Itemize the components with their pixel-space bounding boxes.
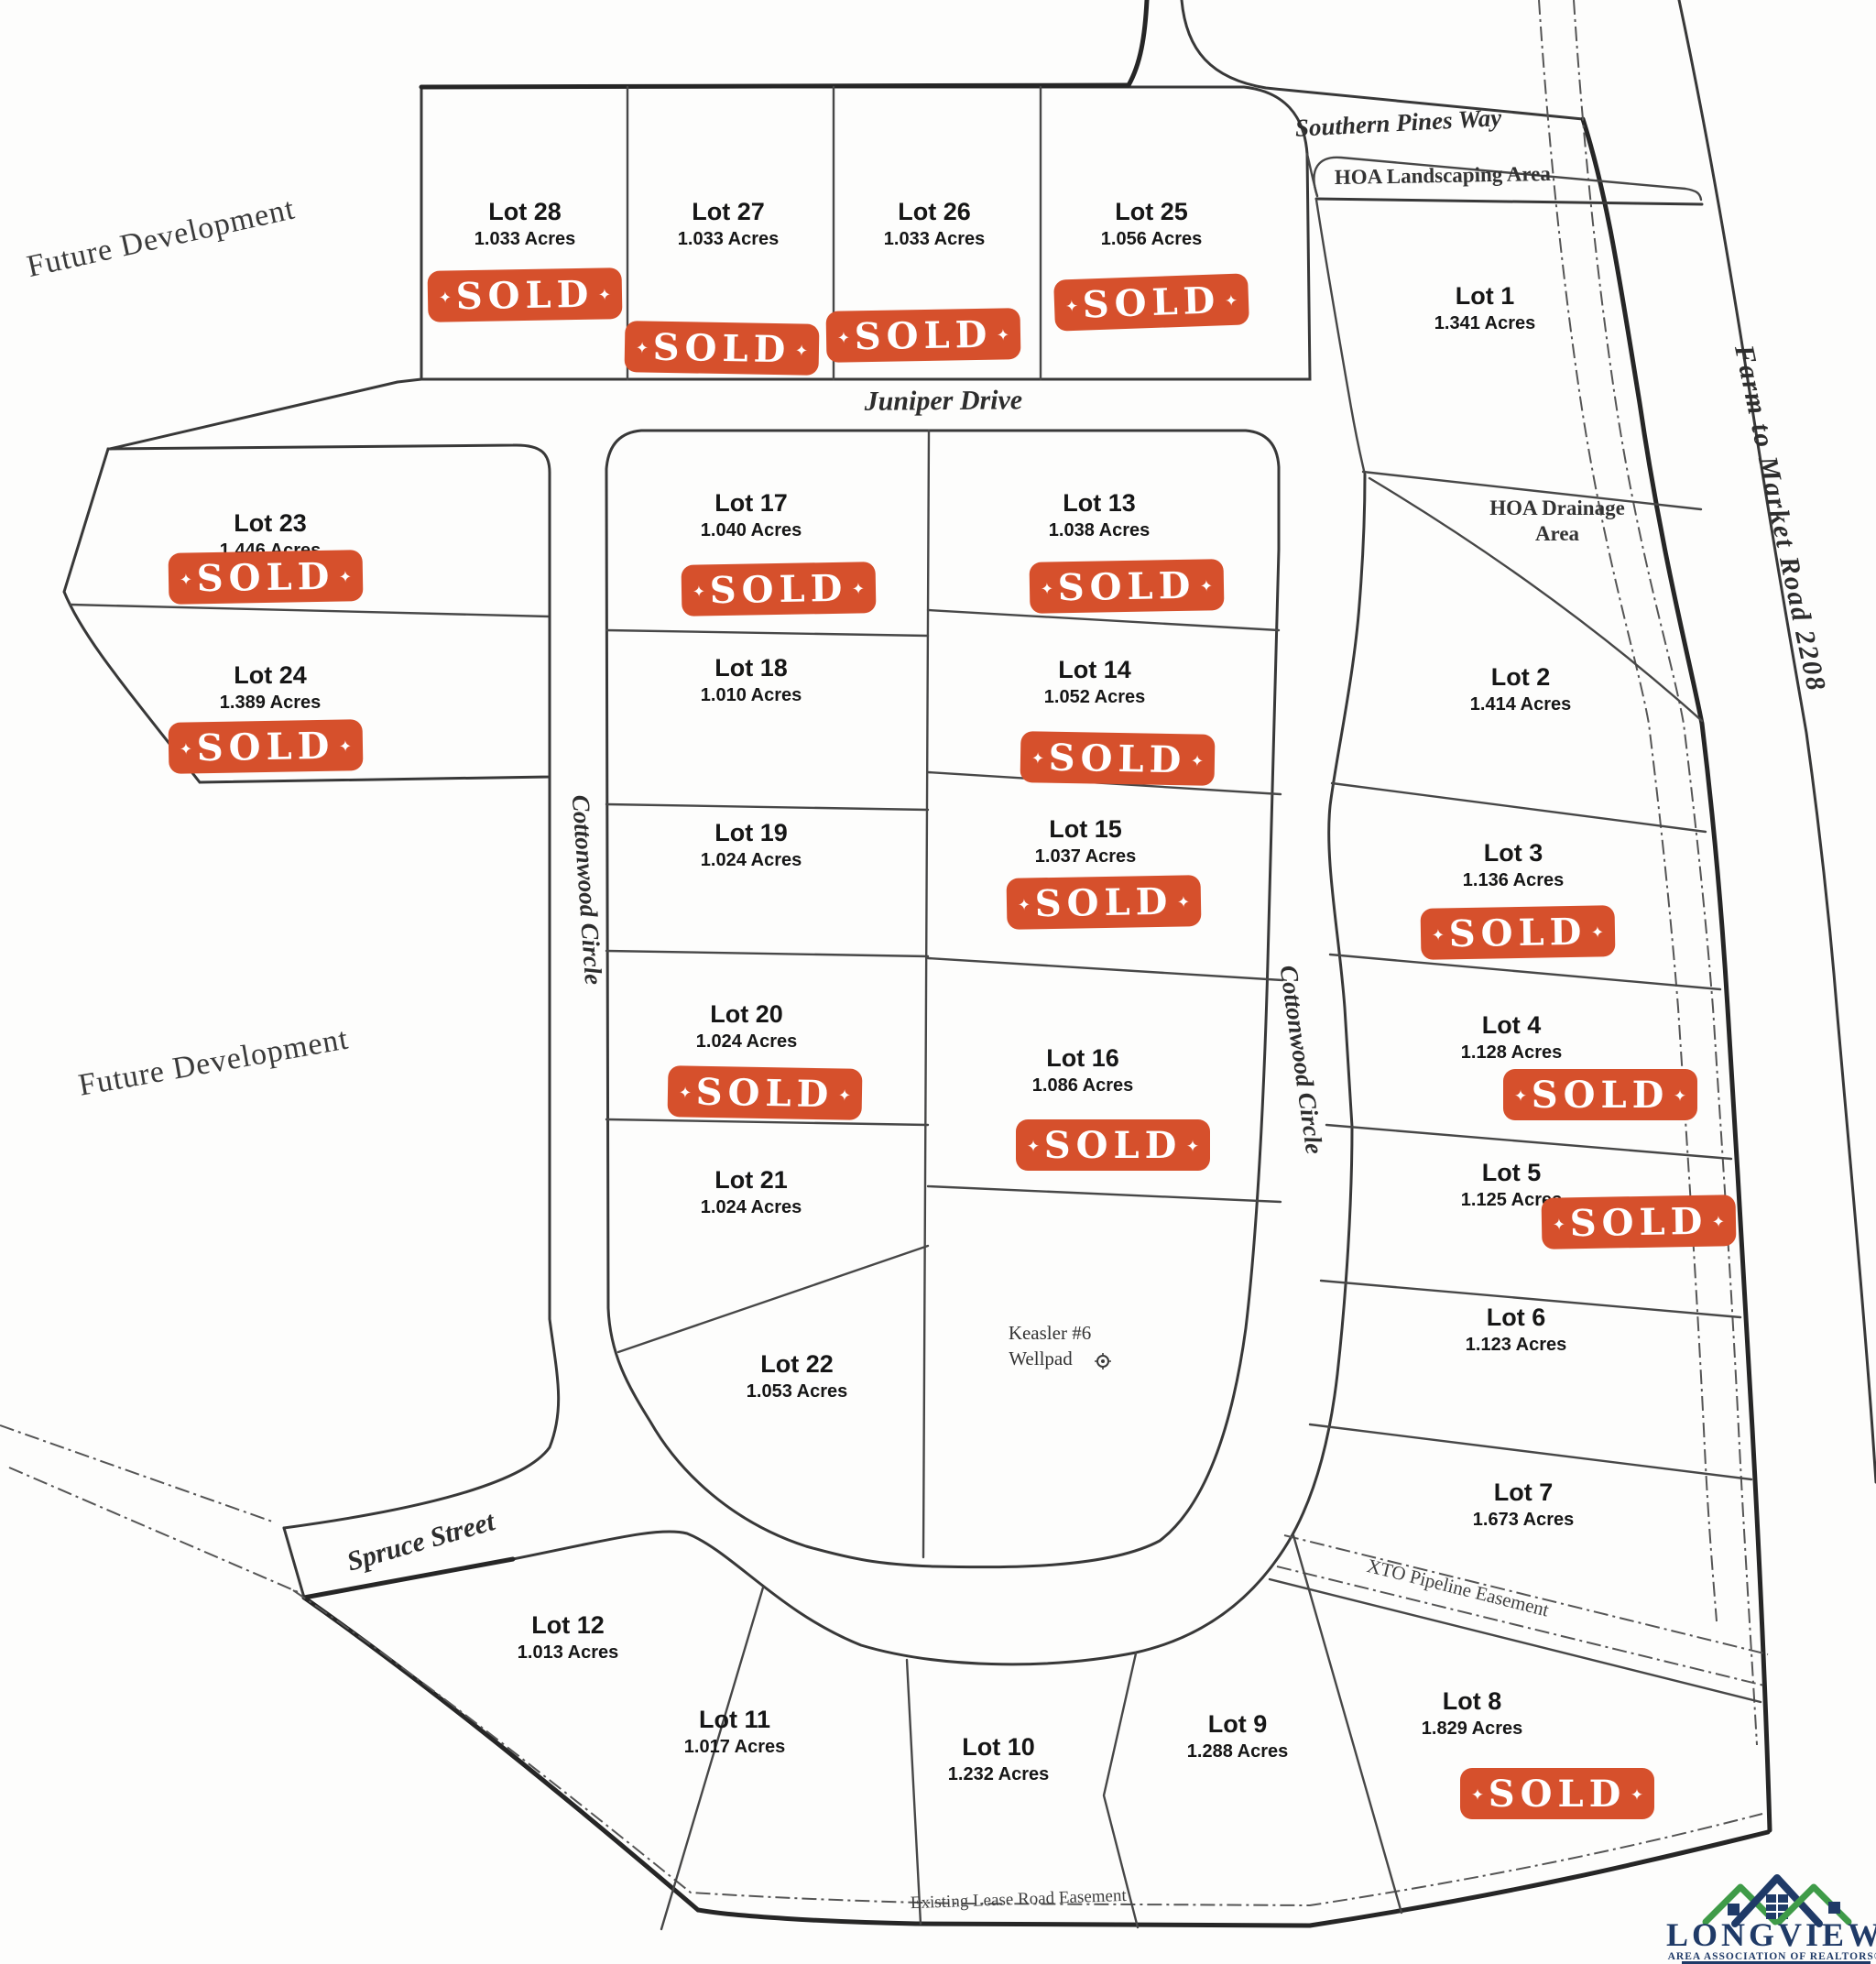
svg-text:✦: ✦ bbox=[180, 571, 193, 589]
lot-7-label: Lot 71.673 Acres bbox=[1473, 1478, 1574, 1530]
svg-text:✦: ✦ bbox=[1041, 580, 1054, 598]
lot-27-label: Lot 271.033 Acres bbox=[678, 198, 779, 249]
lot-boundaries bbox=[0, 0, 1876, 1929]
svg-text:1.414 Acres: 1.414 Acres bbox=[1470, 694, 1571, 715]
svg-text:1.024 Acres: 1.024 Acres bbox=[696, 1031, 797, 1052]
lot-8-sold-stamp: ✦ SOLD ✦ bbox=[1460, 1768, 1654, 1819]
road-label-farm-to-market: Farm to Market Road 2208 bbox=[1729, 342, 1832, 695]
svg-text:Lot 18: Lot 18 bbox=[714, 654, 788, 682]
future-development-mid-label: Future Development bbox=[76, 1022, 351, 1103]
svg-text:✦: ✦ bbox=[1031, 749, 1045, 768]
svg-text:Lot 10: Lot 10 bbox=[962, 1733, 1035, 1761]
svg-text:✦: ✦ bbox=[339, 568, 353, 586]
svg-text:✦: ✦ bbox=[679, 1084, 693, 1102]
svg-text:SOLD: SOLD bbox=[1048, 736, 1186, 782]
svg-text:1.056 Acres: 1.056 Acres bbox=[1101, 229, 1202, 249]
svg-text:SOLD: SOLD bbox=[1569, 1200, 1707, 1246]
svg-text:Lot 15: Lot 15 bbox=[1049, 815, 1122, 843]
svg-text:1.013 Acres: 1.013 Acres bbox=[518, 1642, 618, 1663]
svg-text:1.040 Acres: 1.040 Acres bbox=[701, 520, 802, 540]
lot-1-label: Lot 11.341 Acres bbox=[1434, 282, 1535, 333]
lot-13-label: Lot 131.038 Acres bbox=[1049, 489, 1150, 540]
lot-9-label: Lot 91.288 Acres bbox=[1187, 1710, 1288, 1762]
svg-text:✦: ✦ bbox=[1186, 1138, 1199, 1156]
lot-25-label: Lot 251.056 Acres bbox=[1101, 198, 1202, 249]
lot-16-sold-stamp: ✦ SOLD ✦ bbox=[1016, 1119, 1210, 1171]
lot-11-label: Lot 111.017 Acres bbox=[684, 1706, 785, 1757]
lot-12-label: Lot 121.013 Acres bbox=[518, 1611, 618, 1663]
svg-text:✦: ✦ bbox=[598, 286, 612, 304]
svg-text:✦: ✦ bbox=[1027, 1138, 1040, 1156]
lot-15-sold-stamp: ✦ SOLD ✦ bbox=[1007, 875, 1202, 930]
lot-3-sold-stamp: ✦ SOLD ✦ bbox=[1421, 905, 1616, 960]
svg-text:✦: ✦ bbox=[339, 737, 353, 756]
svg-text:1.033 Acres: 1.033 Acres bbox=[474, 229, 575, 249]
svg-text:Lot 20: Lot 20 bbox=[710, 1000, 783, 1028]
lot-21-label: Lot 211.024 Acres bbox=[701, 1166, 802, 1217]
svg-text:1.288 Acres: 1.288 Acres bbox=[1187, 1741, 1288, 1762]
svg-text:HOA Drainage: HOA Drainage bbox=[1489, 496, 1625, 519]
svg-text:Lot 24: Lot 24 bbox=[234, 661, 307, 689]
logo-title: LONGVIEW bbox=[1666, 1916, 1876, 1953]
svg-text:1.136 Acres: 1.136 Acres bbox=[1463, 870, 1564, 890]
svg-text:1.052 Acres: 1.052 Acres bbox=[1044, 687, 1145, 707]
svg-text:SOLD: SOLD bbox=[695, 1071, 834, 1117]
lot-26-sold-stamp: ✦ SOLD ✦ bbox=[826, 308, 1021, 363]
lot-22-label: Lot 221.053 Acres bbox=[747, 1350, 847, 1402]
svg-text:✦: ✦ bbox=[636, 339, 649, 357]
svg-text:✦: ✦ bbox=[1674, 1087, 1686, 1106]
svg-text:1.123 Acres: 1.123 Acres bbox=[1466, 1335, 1566, 1355]
road-label-juniper: Juniper Drive bbox=[864, 385, 1023, 417]
svg-text:1.341 Acres: 1.341 Acres bbox=[1434, 313, 1535, 333]
svg-text:✦: ✦ bbox=[837, 329, 851, 347]
longview-logo: LONGVIEW AREA ASSOCIATION OF REALTORS® bbox=[1666, 1878, 1876, 1964]
lot-20-label: Lot 201.024 Acres bbox=[696, 1000, 797, 1052]
svg-text:Lot 2: Lot 2 bbox=[1491, 663, 1551, 691]
svg-text:1.033 Acres: 1.033 Acres bbox=[884, 229, 985, 249]
svg-text:1.673 Acres: 1.673 Acres bbox=[1473, 1510, 1574, 1530]
svg-text:SOLD: SOLD bbox=[1044, 1124, 1183, 1167]
svg-text:1.024 Acres: 1.024 Acres bbox=[701, 850, 802, 870]
wellpad-label: Keasler #6 Wellpad bbox=[1009, 1322, 1091, 1369]
svg-text:✦: ✦ bbox=[1514, 1087, 1527, 1106]
wellpad-symbol-icon bbox=[1095, 1353, 1111, 1369]
svg-text:1.829 Acres: 1.829 Acres bbox=[1422, 1718, 1522, 1739]
lot-19-label: Lot 191.024 Acres bbox=[701, 819, 802, 870]
hoa-landscaping-label: HOA Landscaping Area bbox=[1335, 162, 1552, 189]
lot-4-label: Lot 41.128 Acres bbox=[1461, 1011, 1562, 1063]
road-label-cottonwood-east: Cottonwood Circle bbox=[1275, 964, 1329, 1156]
svg-text:SOLD: SOLD bbox=[1057, 564, 1195, 610]
svg-text:1.033 Acres: 1.033 Acres bbox=[678, 229, 779, 249]
lot-14-label: Lot 141.052 Acres bbox=[1044, 656, 1145, 707]
svg-text:SOLD: SOLD bbox=[1082, 278, 1221, 326]
svg-text:✦: ✦ bbox=[997, 326, 1010, 344]
svg-text:✦: ✦ bbox=[852, 580, 866, 598]
lot-10-label: Lot 101.232 Acres bbox=[948, 1733, 1049, 1784]
lot-24-sold-stamp: ✦ SOLD ✦ bbox=[169, 719, 364, 774]
lot-16-label: Lot 161.086 Acres bbox=[1032, 1044, 1133, 1096]
future-development-top-label: Future Development bbox=[24, 191, 298, 284]
lot-18-label: Lot 181.010 Acres bbox=[701, 654, 802, 705]
svg-text:SOLD: SOLD bbox=[455, 273, 594, 319]
svg-text:1.232 Acres: 1.232 Acres bbox=[948, 1764, 1049, 1784]
svg-text:1.389 Acres: 1.389 Acres bbox=[220, 693, 321, 713]
svg-text:1.053 Acres: 1.053 Acres bbox=[747, 1381, 847, 1402]
svg-text:✦: ✦ bbox=[439, 289, 453, 307]
svg-text:1.038 Acres: 1.038 Acres bbox=[1049, 520, 1150, 540]
svg-text:1.010 Acres: 1.010 Acres bbox=[701, 685, 802, 705]
svg-text:Lot 11: Lot 11 bbox=[699, 1706, 770, 1733]
lot-8-label: Lot 81.829 Acres bbox=[1422, 1687, 1522, 1739]
svg-text:✦: ✦ bbox=[1065, 298, 1079, 316]
svg-text:Lot 1: Lot 1 bbox=[1456, 282, 1515, 310]
svg-text:Lot 4: Lot 4 bbox=[1482, 1011, 1542, 1039]
svg-text:1.128 Acres: 1.128 Acres bbox=[1461, 1042, 1562, 1063]
lot-15-label: Lot 151.037 Acres bbox=[1035, 815, 1136, 867]
logo-subtitle: AREA ASSOCIATION OF REALTORS® bbox=[1668, 1951, 1876, 1962]
svg-text:✦: ✦ bbox=[1432, 926, 1445, 944]
svg-text:Lot 5: Lot 5 bbox=[1482, 1159, 1542, 1186]
svg-text:✦: ✦ bbox=[1191, 752, 1205, 770]
svg-text:SOLD: SOLD bbox=[1448, 911, 1587, 956]
svg-text:Keasler #6: Keasler #6 bbox=[1009, 1322, 1091, 1344]
lot-3-label: Lot 31.136 Acres bbox=[1463, 839, 1564, 890]
hoa-drainage-label: HOA Drainage Area bbox=[1489, 496, 1625, 545]
svg-text:✦: ✦ bbox=[1591, 923, 1605, 942]
svg-text:SOLD: SOLD bbox=[1034, 880, 1172, 926]
svg-text:Lot 14: Lot 14 bbox=[1058, 656, 1131, 683]
lot-25-sold-stamp: ✦ SOLD ✦ bbox=[1053, 273, 1249, 331]
svg-text:✦: ✦ bbox=[1712, 1213, 1726, 1231]
svg-text:1.024 Acres: 1.024 Acres bbox=[701, 1197, 802, 1217]
svg-text:Lot 9: Lot 9 bbox=[1208, 1710, 1268, 1738]
svg-text:✦: ✦ bbox=[180, 740, 193, 758]
svg-text:Lot 16: Lot 16 bbox=[1046, 1044, 1119, 1072]
lease-road-easement-label: Existing Lease Road Easement bbox=[911, 1886, 1128, 1913]
lot-17-label: Lot 171.040 Acres bbox=[701, 489, 802, 540]
svg-text:SOLD: SOLD bbox=[196, 555, 334, 601]
svg-text:✦: ✦ bbox=[1631, 1786, 1643, 1805]
svg-text:Lot 27: Lot 27 bbox=[692, 198, 765, 225]
svg-text:✦: ✦ bbox=[1471, 1786, 1484, 1805]
svg-text:Area: Area bbox=[1535, 522, 1580, 545]
svg-text:✦: ✦ bbox=[1200, 577, 1214, 595]
svg-text:✦: ✦ bbox=[1177, 893, 1191, 911]
svg-text:1.037 Acres: 1.037 Acres bbox=[1035, 846, 1136, 867]
road-label-southern-pines: Southern Pines Way bbox=[1294, 104, 1503, 142]
svg-text:✦: ✦ bbox=[693, 583, 706, 601]
svg-text:✦: ✦ bbox=[795, 342, 809, 360]
lot-14-sold-stamp: ✦ SOLD ✦ bbox=[1020, 731, 1216, 786]
svg-text:SOLD: SOLD bbox=[196, 725, 334, 770]
svg-text:1.086 Acres: 1.086 Acres bbox=[1032, 1075, 1133, 1096]
road-label-cottonwood-west: Cottonwood Circle bbox=[567, 794, 607, 986]
lot-6-label: Lot 61.123 Acres bbox=[1466, 1304, 1566, 1355]
lot-28-label: Lot 281.033 Acres bbox=[474, 198, 575, 249]
svg-text:✦: ✦ bbox=[1553, 1216, 1566, 1234]
svg-text:SOLD: SOLD bbox=[1532, 1074, 1670, 1117]
svg-text:Lot 28: Lot 28 bbox=[488, 198, 562, 225]
svg-text:Lot 17: Lot 17 bbox=[714, 489, 788, 517]
lot-17-sold-stamp: ✦ SOLD ✦ bbox=[682, 562, 877, 616]
svg-text:Lot 6: Lot 6 bbox=[1487, 1304, 1546, 1331]
svg-text:Lot 21: Lot 21 bbox=[714, 1166, 788, 1194]
svg-text:Lot 23: Lot 23 bbox=[234, 509, 307, 537]
svg-text:Wellpad: Wellpad bbox=[1009, 1348, 1073, 1369]
lot-2-label: Lot 21.414 Acres bbox=[1470, 663, 1571, 715]
svg-text:✦: ✦ bbox=[1225, 292, 1238, 311]
svg-text:Lot 19: Lot 19 bbox=[714, 819, 788, 846]
svg-text:✦: ✦ bbox=[1018, 896, 1031, 914]
svg-text:Lot 7: Lot 7 bbox=[1494, 1478, 1554, 1506]
svg-text:Lot 22: Lot 22 bbox=[760, 1350, 834, 1378]
svg-text:SOLD: SOLD bbox=[652, 326, 791, 372]
lot-26-label: Lot 261.033 Acres bbox=[884, 198, 985, 249]
plat-map: Lot 11.341 Acres Lot 21.414 Acres Lot 31… bbox=[0, 0, 1876, 1964]
svg-text:SOLD: SOLD bbox=[854, 313, 992, 359]
svg-text:Lot 12: Lot 12 bbox=[531, 1611, 605, 1639]
svg-text:Lot 8: Lot 8 bbox=[1443, 1687, 1502, 1715]
svg-text:SOLD: SOLD bbox=[1489, 1773, 1627, 1816]
svg-text:Lot 13: Lot 13 bbox=[1063, 489, 1136, 517]
lot-20-sold-stamp: ✦ SOLD ✦ bbox=[668, 1065, 863, 1120]
svg-text:SOLD: SOLD bbox=[709, 567, 847, 613]
lot-13-sold-stamp: ✦ SOLD ✦ bbox=[1030, 559, 1225, 614]
lot-23-sold-stamp: ✦ SOLD ✦ bbox=[169, 550, 364, 605]
lot-28-sold-stamp: ✦ SOLD ✦ bbox=[428, 267, 623, 322]
svg-text:Lot 25: Lot 25 bbox=[1115, 198, 1188, 225]
svg-text:Lot 26: Lot 26 bbox=[898, 198, 971, 225]
lot-5-sold-stamp: ✦ SOLD ✦ bbox=[1542, 1195, 1737, 1249]
svg-text:✦: ✦ bbox=[838, 1086, 852, 1105]
area-labels: Future Development Future Development HO… bbox=[24, 162, 1625, 1913]
lot-4-sold-stamp: ✦ SOLD ✦ bbox=[1503, 1069, 1697, 1120]
svg-text:1.017 Acres: 1.017 Acres bbox=[684, 1737, 785, 1757]
lot-24-label: Lot 241.389 Acres bbox=[220, 661, 321, 713]
lot-27-sold-stamp: ✦ SOLD ✦ bbox=[625, 321, 820, 376]
svg-text:Lot 3: Lot 3 bbox=[1484, 839, 1543, 867]
